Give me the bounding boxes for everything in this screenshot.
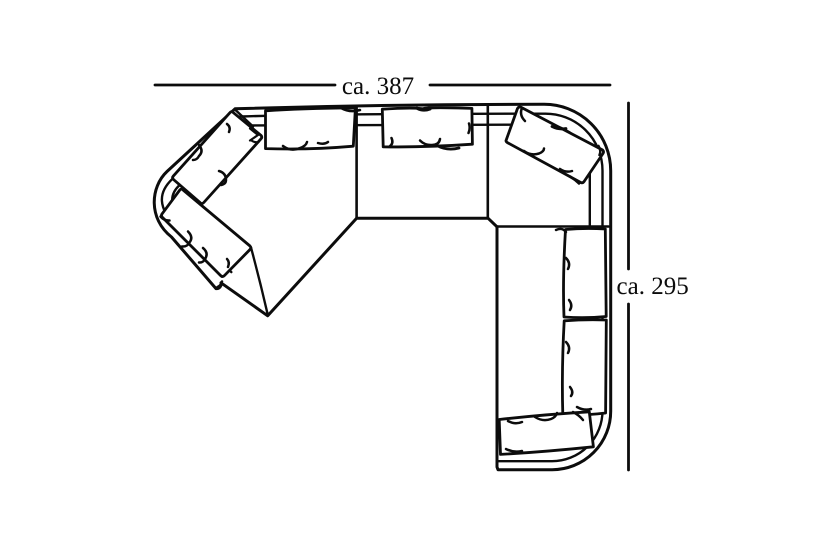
- svg-text:ca. 295: ca. 295: [617, 273, 689, 300]
- svg-text:ca. 387: ca. 387: [342, 73, 414, 100]
